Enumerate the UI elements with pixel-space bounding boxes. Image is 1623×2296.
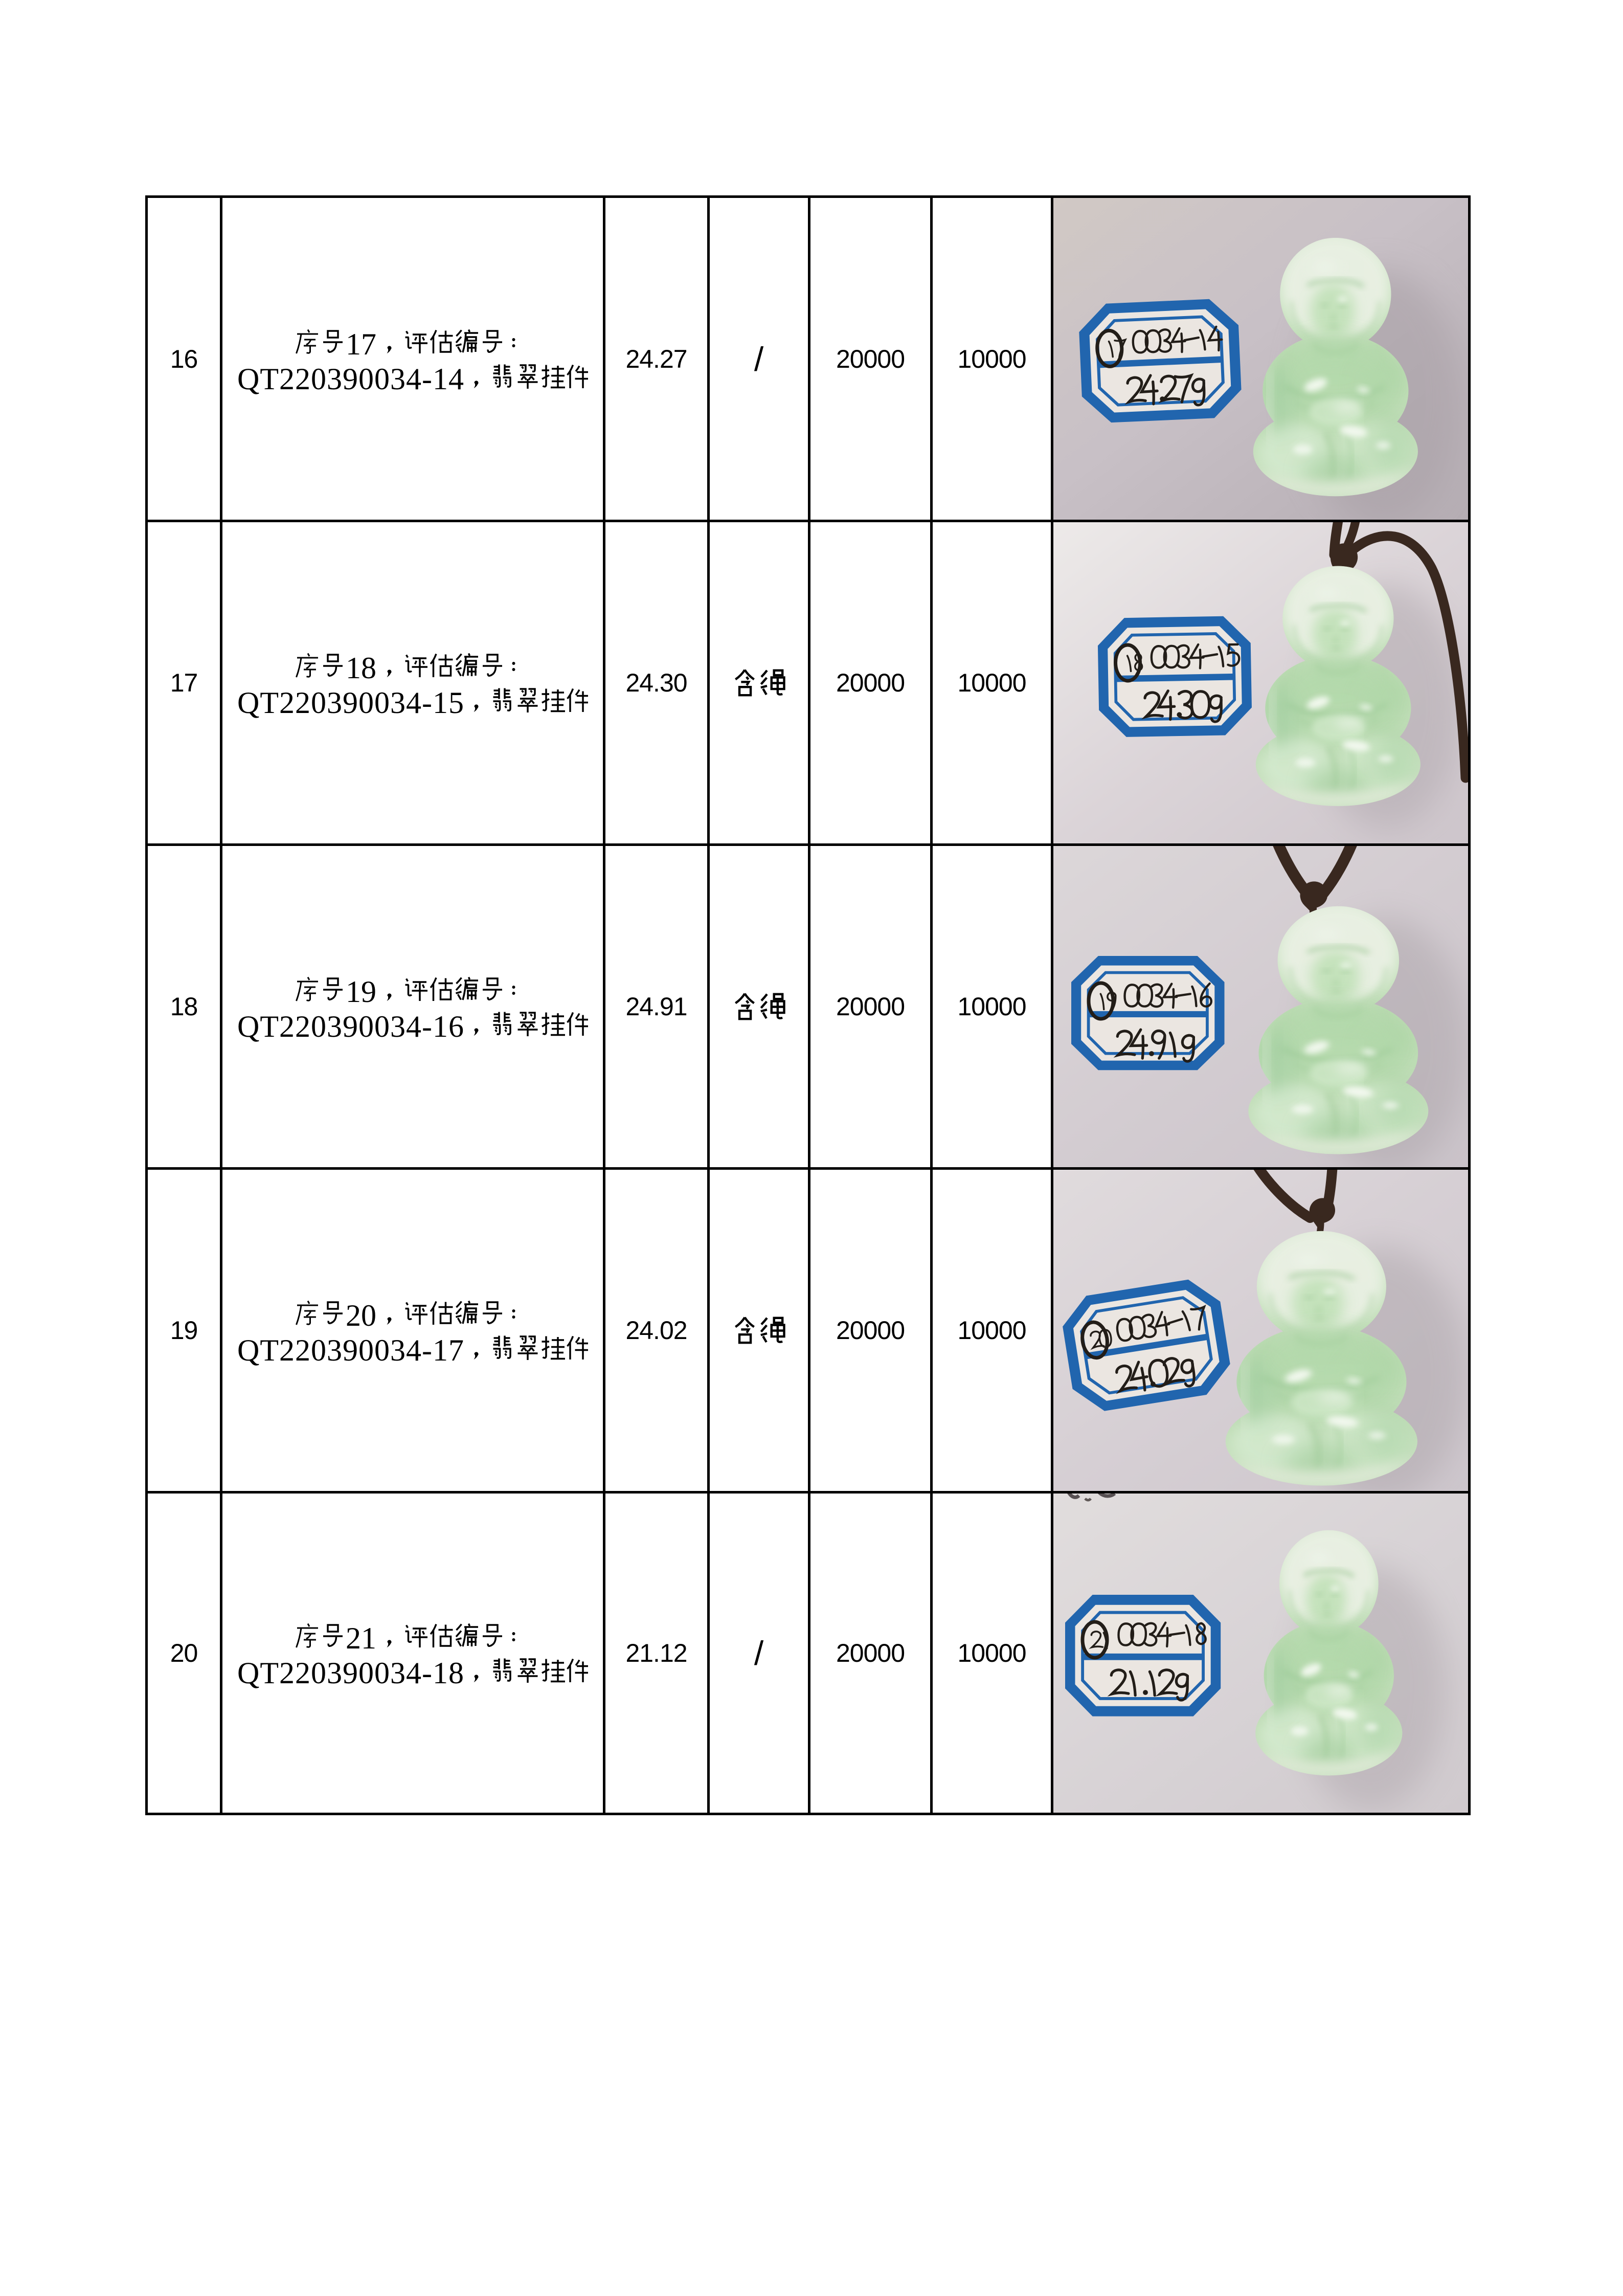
svg-text:19: 19 (346, 975, 376, 1007)
svg-text:QT220390034-14: QT220390034-14 (237, 362, 464, 396)
svg-text:QT220390034-17: QT220390034-17 (237, 1333, 464, 1367)
svg-text:QT220390034-15: QT220390034-15 (237, 686, 464, 720)
svg-text:17: 17 (346, 327, 376, 360)
svg-text:18: 18 (346, 651, 376, 683)
svg-text:21: 21 (346, 1621, 376, 1654)
svg-text:QT220390034-16: QT220390034-16 (237, 1010, 464, 1043)
svg-text:20: 20 (346, 1299, 376, 1331)
svg-text:QT220390034-18: QT220390034-18 (237, 1656, 464, 1690)
